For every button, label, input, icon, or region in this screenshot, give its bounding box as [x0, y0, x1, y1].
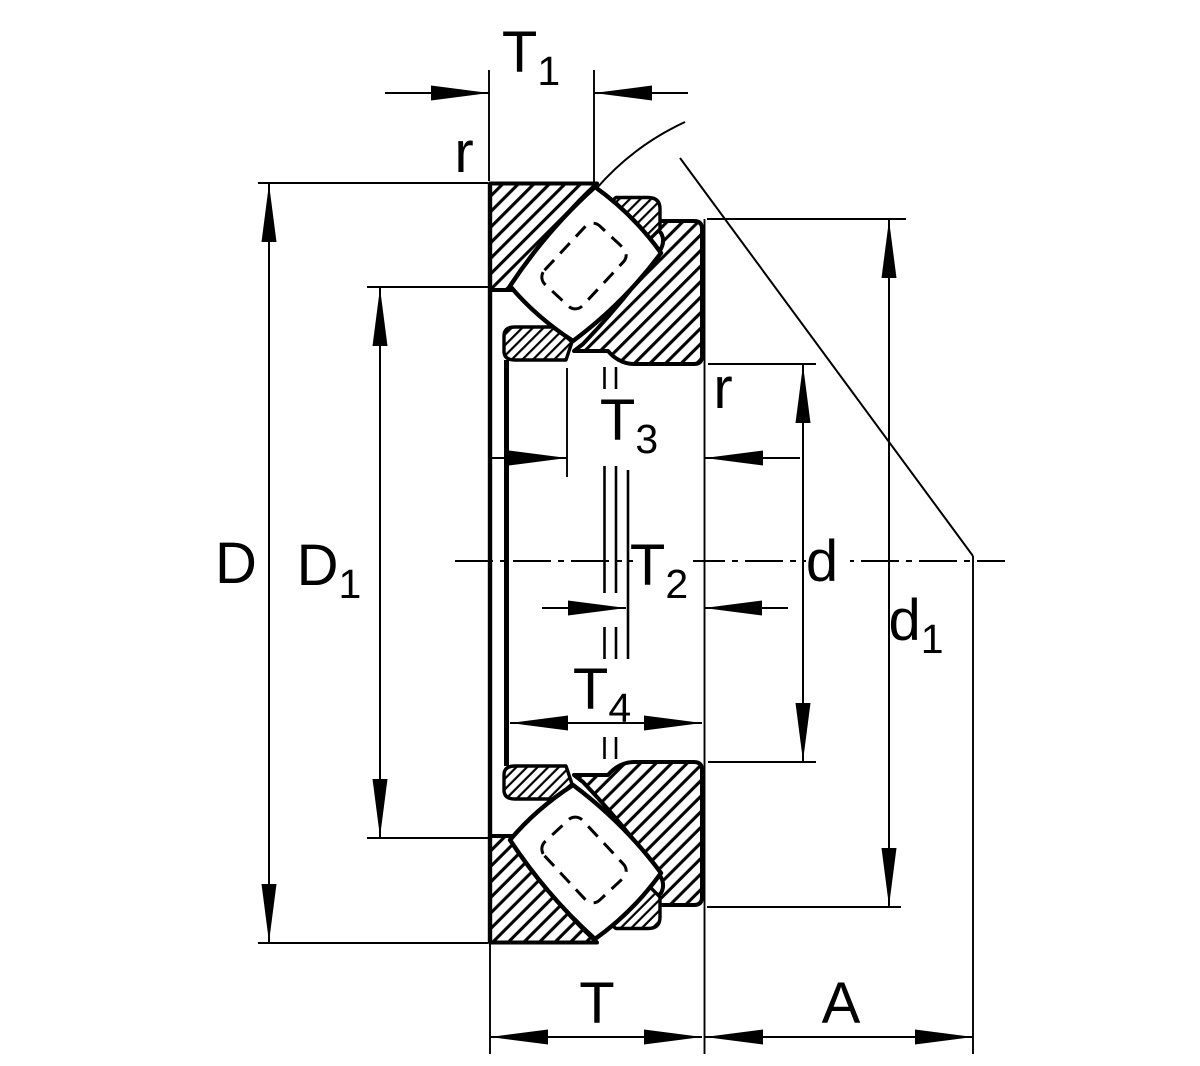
label-T: T: [579, 971, 614, 1036]
label-T1: T1: [502, 20, 560, 94]
dim-D1: [373, 288, 388, 837]
label-d: d: [806, 529, 838, 594]
bearing-drawing-page: T1 r T3 r T2 T4 D D1 d d1 T A: [0, 0, 1200, 1066]
label-r-top: r: [454, 120, 473, 185]
label-D1: D1: [297, 533, 362, 607]
dim-D: [262, 184, 277, 942]
label-A: A: [822, 971, 861, 1036]
label-D: D: [215, 531, 257, 596]
bearing-section-drawing: T1 r T3 r T2 T4 D D1 d d1 T A: [0, 0, 1200, 1066]
label-r-mid: r: [713, 356, 732, 421]
bearing-lower-half: [490, 762, 702, 943]
dim-d1: [882, 220, 897, 906]
label-T4: T4: [573, 657, 631, 731]
bearing-upper-half: [490, 184, 702, 365]
label-T3: T3: [600, 388, 658, 462]
label-d1: d1: [888, 588, 943, 662]
sphere-arc: [596, 122, 685, 189]
